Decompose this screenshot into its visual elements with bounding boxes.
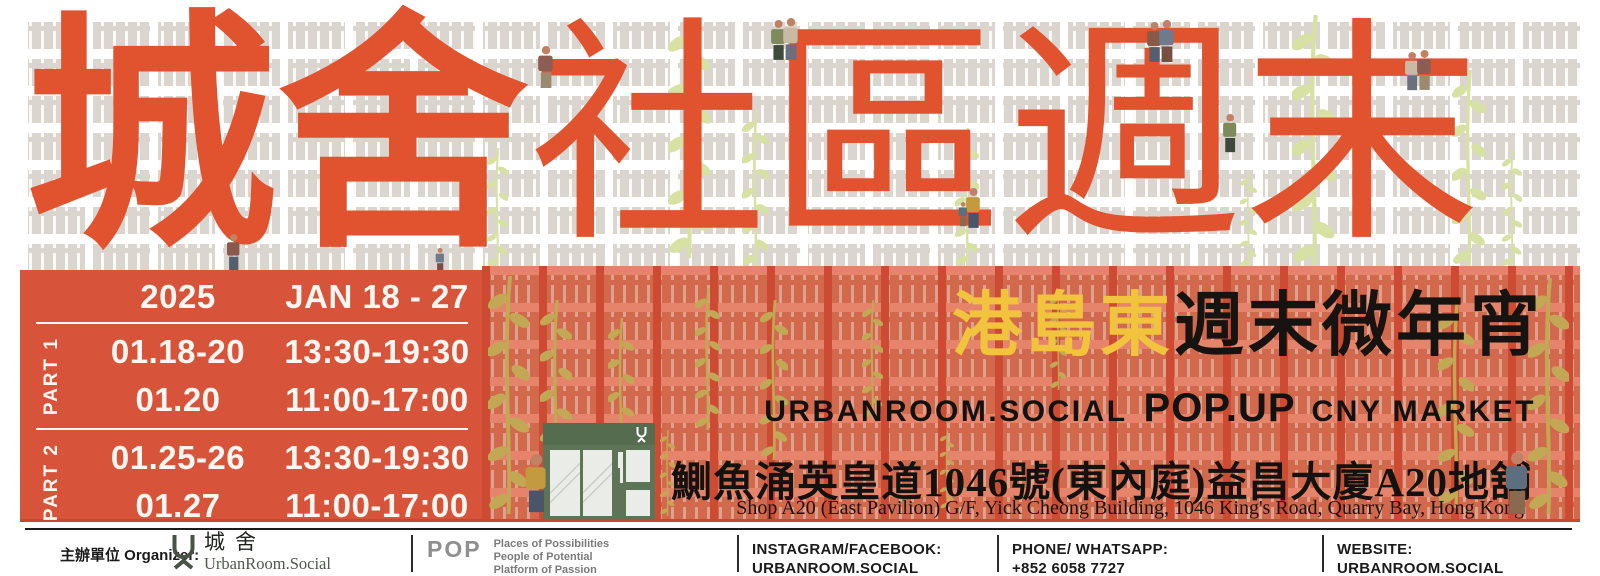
website-value: URBANROOM.SOCIAL: [1337, 559, 1503, 576]
pop-tagline: Places of Possibilities: [494, 538, 610, 551]
website-label: WEBSITE:: [1337, 540, 1503, 559]
storefront-door: [626, 450, 650, 519]
storefront-logo-icon: [635, 426, 648, 443]
footer-section-divider: [997, 535, 999, 572]
organizer-name-zh: 城舍: [204, 532, 331, 553]
schedule-dates: 01.18-20: [84, 333, 272, 371]
schedule-row: 01.18-20 13:30-19:30: [84, 328, 482, 376]
schedule-row: 01.25-26 13:30-19:30: [84, 434, 482, 482]
market-popup: POP.UP: [1144, 386, 1296, 431]
schedule-part-1: PART 1 01.18-20 13:30-19:30 01.20 11:00-…: [20, 326, 482, 426]
urbanroom-logo-icon: [170, 533, 197, 570]
poster-title: 城 舍 社 區 週 末: [25, 6, 1461, 268]
footer: 主辦單位 Organizer: 城舍 UrbanRoom.Social POP …: [0, 522, 1600, 576]
storefront-sign: [543, 423, 655, 445]
info-band: 2025 JAN 18 - 27 PART 1 01.18-20 13:30-1…: [0, 266, 1600, 522]
leaf-vine: [760, 300, 788, 460]
event-poster: 城 舍 社 區 週 末 2025 JAN 18 - 27 PART 1 01.1…: [0, 0, 1600, 576]
schedule-date-range: JAN 18 - 27: [272, 278, 482, 316]
phone-value: +852 6058 7727: [1012, 559, 1168, 576]
organizer-name-en: UrbanRoom.Social: [204, 556, 331, 573]
schedule-panel: 2025 JAN 18 - 27 PART 1 01.18-20 13:30-1…: [20, 270, 482, 522]
schedule-part-2: PART 2 01.25-26 13:30-19:30 01.27 11:00-…: [20, 432, 482, 532]
schedule-header: 2025 JAN 18 - 27: [20, 274, 482, 320]
storefront-window: [550, 450, 612, 516]
schedule-row: 01.20 11:00-17:00: [84, 376, 482, 424]
pop-tagline: Platform of Passion: [494, 564, 610, 576]
schedule-dates: 01.20: [84, 381, 272, 419]
social-label: INSTAGRAM/FACEBOOK:: [752, 540, 942, 559]
website-contact: WEBSITE: URBANROOM.SOCIAL: [1337, 540, 1503, 576]
title-char: 城: [25, 11, 277, 263]
event-info-block: 港島東週末微年宵 URBANROOM.SOCIAL POP.UP CNY MAR…: [482, 266, 1580, 522]
person-figure: [524, 454, 547, 512]
organizer-name: 城舍 UrbanRoom.Social: [204, 532, 331, 573]
schedule-part-label: PART 1: [41, 337, 63, 415]
phone-contact: PHONE/ WHATSAPP: +852 6058 7727: [1012, 540, 1168, 576]
event-headline: 港島東週末微年宵: [952, 288, 1544, 365]
schedule-year: 2025: [84, 278, 272, 316]
title-char: 週: [1005, 18, 1243, 256]
person-figure: [1416, 50, 1432, 90]
title-char: 末: [1243, 18, 1481, 256]
phone-label: PHONE/ WHATSAPP:: [1012, 540, 1168, 559]
headline-highlight: 港島東: [952, 288, 1174, 365]
pop-logo: POP: [427, 538, 482, 561]
schedule-dates: 01.27: [84, 487, 272, 525]
social-contact: INSTAGRAM/FACEBOOK: URBANROOM.SOCIAL: [752, 540, 942, 576]
person-figure: [1504, 452, 1529, 514]
pop-tagline: People of Potential: [494, 551, 610, 564]
schedule-dates: 01.25-26: [84, 439, 272, 477]
person-figure: [782, 18, 799, 60]
title-char: 社: [529, 18, 767, 256]
leaf-vine: [1502, 150, 1522, 268]
social-value: URBANROOM.SOCIAL: [752, 559, 942, 576]
market-brand: URBANROOM.SOCIAL: [764, 395, 1127, 429]
address-english: Shop A20 (East Pavilion) G/F, Yick Cheon…: [736, 497, 1524, 520]
pop-taglines: Places of Possibilities People of Potent…: [494, 538, 610, 576]
storefront-illustration: [543, 423, 655, 519]
leaf-vine: [488, 276, 529, 514]
footer-divider-line: [25, 528, 1572, 530]
footer-section-divider: [411, 535, 413, 572]
divider: [36, 322, 468, 324]
person-figure: [226, 234, 240, 270]
schedule-times: 13:30-19:30: [272, 333, 482, 371]
schedule-times: 11:00-17:00: [272, 487, 482, 525]
person-figure: [537, 46, 554, 88]
market-title: URBANROOM.SOCIAL POP.UP CNY MARKET: [764, 386, 1536, 431]
person-figure: [1158, 20, 1175, 62]
schedule-part-label: PART 2: [41, 443, 63, 521]
market-type: CNY MARKET: [1312, 395, 1536, 429]
person-figure: [1222, 114, 1237, 152]
headline-rest: 週末微年宵: [1174, 288, 1544, 365]
leaf-vine: [695, 288, 720, 430]
divider: [36, 428, 468, 430]
title-char: 舍: [277, 11, 529, 263]
footer-section-divider: [737, 535, 739, 572]
footer-section-divider: [1322, 535, 1324, 572]
schedule-times: 13:30-19:30: [272, 439, 482, 477]
person-figure: [958, 202, 968, 226]
pop-block: POP Places of Possibilities People of Po…: [427, 538, 609, 576]
schedule-times: 11:00-17:00: [272, 381, 482, 419]
